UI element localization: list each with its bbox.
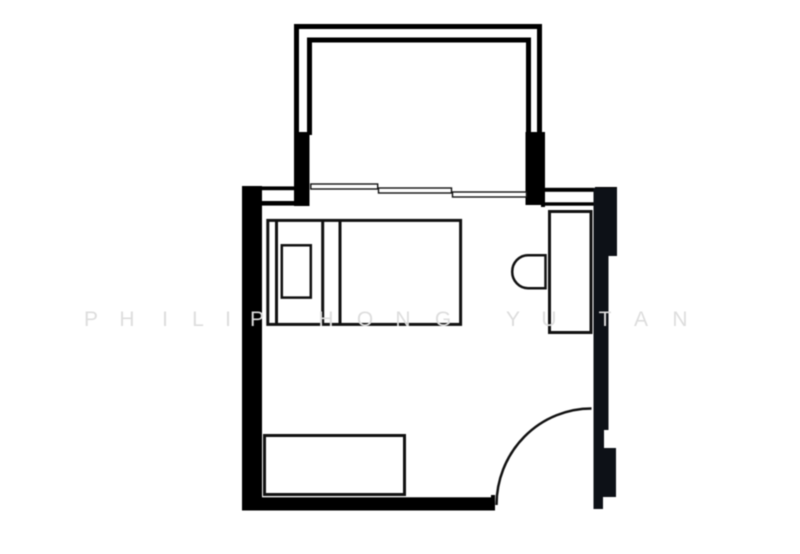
svg-text:G: G (435, 308, 451, 331)
svg-text:L: L (192, 308, 204, 331)
svg-text:H: H (119, 308, 134, 331)
svg-text:Y: Y (506, 308, 520, 331)
svg-text:I: I (162, 308, 168, 331)
svg-text:N: N (395, 308, 410, 331)
svg-text:T: T (599, 308, 612, 331)
svg-text:U: U (541, 308, 556, 331)
svg-text:O: O (357, 308, 373, 331)
svg-text:H: H (318, 308, 333, 331)
svg-text:N: N (672, 308, 687, 331)
svg-text:P: P (250, 308, 264, 331)
svg-text:A: A (634, 308, 648, 331)
svg-text:P: P (84, 308, 98, 331)
svg-text:I: I (225, 308, 231, 331)
